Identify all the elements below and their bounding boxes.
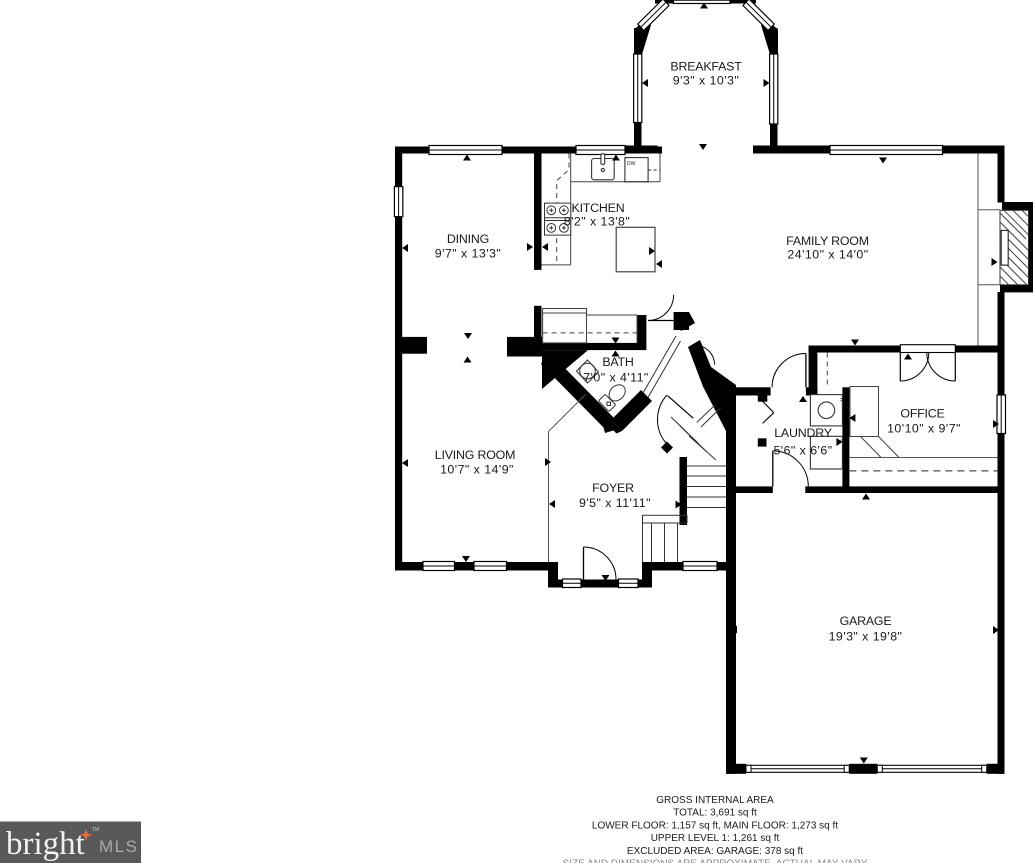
svg-text:19'3" x 19'8": 19'3" x 19'8" <box>829 630 903 644</box>
svg-text:BREAKFAST: BREAKFAST <box>670 60 742 74</box>
svg-text:LAUNDRY: LAUNDRY <box>774 426 832 440</box>
svg-text:TOTAL: 3,691 sq ft: TOTAL: 3,691 sq ft <box>673 808 757 819</box>
svg-text:BATH: BATH <box>602 355 633 369</box>
svg-text:GARAGE: GARAGE <box>840 614 892 628</box>
svg-text:GROSS INTERNAL AREA: GROSS INTERNAL AREA <box>656 795 774 806</box>
svg-text:SIZE AND DIMENSIONS ARE APPROX: SIZE AND DIMENSIONS ARE APPROXIMATE, ACT… <box>563 859 868 863</box>
svg-text:KITCHEN: KITCHEN <box>572 201 625 215</box>
svg-text:5'6" x 6'6": 5'6" x 6'6" <box>773 444 832 458</box>
svg-text:7'0" x 4'11": 7'0" x 4'11" <box>583 371 649 385</box>
svg-text:LOWER FLOOR: 1,157 sq ft, MAIN: LOWER FLOOR: 1,157 sq ft, MAIN FLOOR: 1,… <box>592 820 838 831</box>
svg-text:9'7" x 13'3": 9'7" x 13'3" <box>435 247 501 261</box>
svg-text:10'10" x 9'7": 10'10" x 9'7" <box>887 422 961 436</box>
svg-text:10'7" x 14'9": 10'7" x 14'9" <box>440 463 514 477</box>
svg-text:FAMILY ROOM: FAMILY ROOM <box>786 234 869 248</box>
svg-text:OFFICE: OFFICE <box>900 407 944 421</box>
svg-text:bright: bright <box>6 826 85 862</box>
svg-text:24'10" x 14'0": 24'10" x 14'0" <box>787 248 868 262</box>
svg-text:8'2" x 13'8": 8'2" x 13'8" <box>564 215 630 229</box>
svg-text:EXCLUDED AREA: GARAGE: 378 sq: EXCLUDED AREA: GARAGE: 378 sq ft <box>627 846 803 857</box>
svg-text:UPPER LEVEL 1: 1,261 sq ft: UPPER LEVEL 1: 1,261 sq ft <box>651 833 780 844</box>
svg-text:TM: TM <box>92 827 99 833</box>
svg-text:LIVING ROOM: LIVING ROOM <box>435 448 515 462</box>
svg-text:DINING: DINING <box>447 232 489 246</box>
svg-text:9'3" x 10'3": 9'3" x 10'3" <box>673 74 739 88</box>
svg-text:9'5" x 11'11": 9'5" x 11'11" <box>579 496 651 510</box>
svg-text:DW: DW <box>627 161 636 167</box>
svg-text:FOYER: FOYER <box>592 481 634 495</box>
svg-text:MLS: MLS <box>99 837 138 856</box>
